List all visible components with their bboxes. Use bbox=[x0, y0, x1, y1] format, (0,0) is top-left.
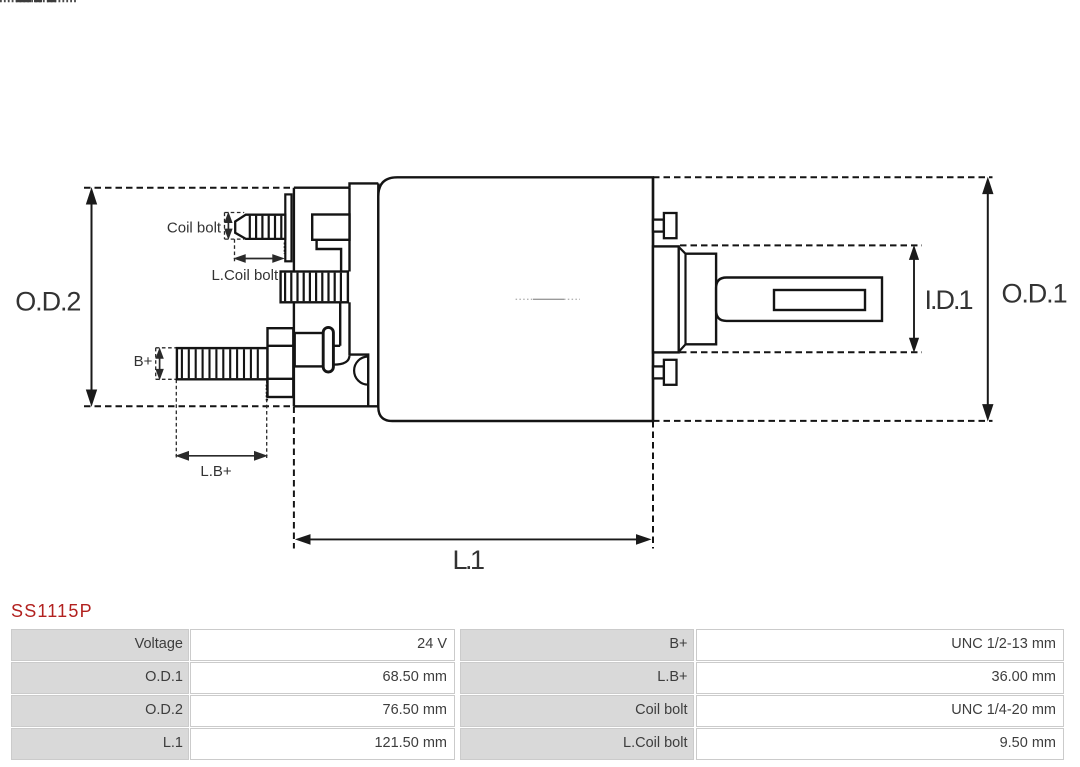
svg-text:L.1: L.1 bbox=[452, 545, 484, 575]
svg-text:L.B+: L.B+ bbox=[200, 463, 232, 480]
svg-text:O.D.2: O.D.2 bbox=[15, 287, 80, 317]
svg-text:Coil bolt: Coil bolt bbox=[167, 220, 222, 237]
svg-text:L.Coil bolt: L.Coil bolt bbox=[211, 267, 279, 284]
svg-text:O.D.1: O.D.1 bbox=[1001, 279, 1066, 309]
svg-text:I.D.1: I.D.1 bbox=[924, 285, 972, 315]
svg-text:B+: B+ bbox=[134, 353, 153, 370]
